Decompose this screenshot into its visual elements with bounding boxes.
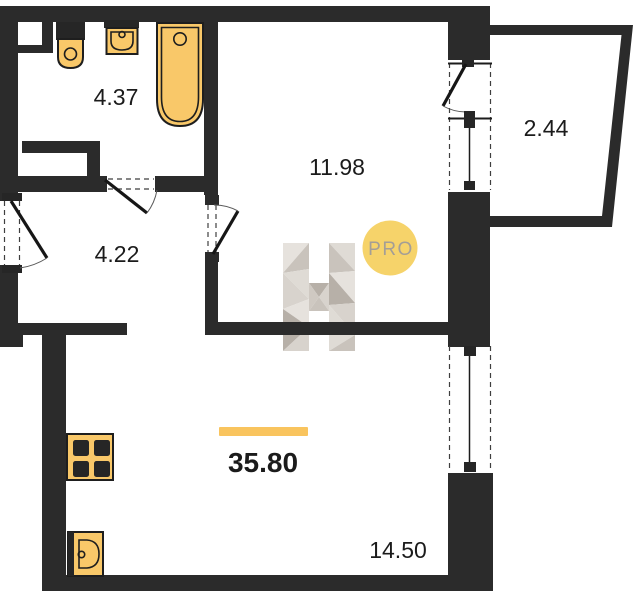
kitchen-sink-icon [68,532,103,576]
bathroom-door-swing-arc [147,190,157,213]
wall-hallway-top-left [0,176,107,192]
bathroom-door [105,179,157,213]
wall-hallway-corner [0,323,23,347]
stove-icon [67,434,113,480]
floor-plan-canvas: PRO 4.37 11.98 2.44 4.22 14.50 35.80 [0,0,637,600]
entrance-jamb-top [2,193,22,201]
entrance-door-swing-arc [20,258,47,268]
balcony-door-swing-arc [443,106,466,112]
pro-badge-label: PRO [368,239,414,260]
entrance-door [2,193,47,273]
wall-hallway-top-right [155,176,218,192]
wall-top [0,6,448,22]
kitchen-living-area-label: 14.50 [369,537,427,563]
living-room-door [208,205,238,254]
lower-window [450,346,491,472]
entrance-jamb-bottom [2,265,22,273]
bathroom-door-leaf [105,180,147,213]
wall-room-divider [205,322,450,335]
total-area-accent-bar [219,427,308,436]
door-jamb-room-bottom [205,252,219,262]
door-jamb-room-top [205,195,219,205]
sink-icon [104,20,139,54]
wall-right-middle [448,192,490,347]
wall-closet-right [87,141,100,176]
balcony-door-window [443,60,492,190]
floor-plan: PRO 4.37 11.98 2.44 4.22 14.50 35.80 [0,0,637,600]
bathtub-icon [157,23,203,126]
balcony-door-leaf [443,64,466,106]
toilet-icon [56,22,85,68]
living-room-door-leaf [213,211,238,254]
wall-bathroom-right [204,22,218,195]
wall-right-bottom [448,473,493,591]
balcony-area-label: 2.44 [524,115,569,141]
entrance-door-leaf [11,201,47,258]
wall-top-right-pillar [448,6,490,60]
wall-kitchen-left [42,335,66,591]
wall-shaft-right [42,22,53,53]
wall-shaft-bottom [18,45,42,53]
total-area-label: 35.80 [228,447,298,478]
living-room-door-swing-arc [214,205,238,211]
wall-left-upper [0,6,18,201]
wall-bottom [42,575,493,591]
bathroom-area-label: 4.37 [94,84,139,110]
hallway-area-label: 4.22 [95,241,140,267]
pro-badge: PRO [363,221,418,276]
living-room-area-label: 11.98 [309,154,365,180]
